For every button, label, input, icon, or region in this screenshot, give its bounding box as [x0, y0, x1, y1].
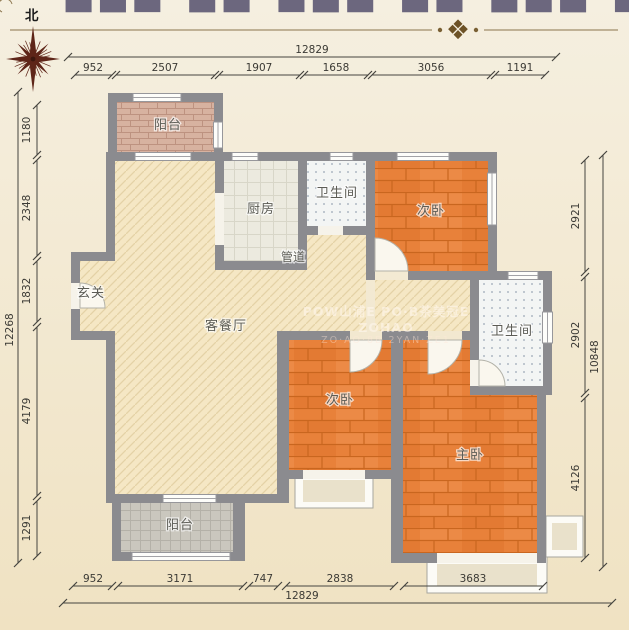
room-label-entry: 玄关: [77, 286, 105, 301]
bed-bottom-bay-opening: [303, 470, 365, 479]
bath-right-door: [470, 360, 479, 386]
dimension-top: 12829 952 2507 1907 1658 3056 1191: [64, 44, 560, 79]
bath-top-door: [318, 226, 343, 235]
hallway-floor: [307, 234, 366, 331]
dim-segment: 1832: [21, 278, 33, 305]
living-floor: [115, 161, 215, 494]
dim-segment: 747: [253, 573, 273, 585]
dim-segment: 4179: [21, 398, 33, 425]
living-floor: [215, 270, 277, 494]
room-label-duct: 管道: [281, 249, 305, 264]
floorplan-canvas: ▆▅▇ ▅▆ ▇▅▆ ▆▇ ▅▆▅ ▇▆ ▅▇▅ ▆▅: [0, 0, 629, 630]
dim-segment: 1907: [246, 62, 273, 74]
dim-segment: 2507: [152, 62, 179, 74]
dim-segment: 2902: [570, 322, 582, 349]
room-label-balcony-bottom: 阳台: [166, 518, 194, 533]
dim-segment: 2921: [570, 203, 582, 230]
dim-segment: 3171: [167, 573, 194, 585]
bay-inner: [437, 564, 537, 586]
room-label-living: 客餐厅: [205, 318, 247, 334]
dim-right-total: 10848: [589, 340, 601, 373]
room-label-bed-bottom: 次卧: [326, 392, 354, 408]
room-label-balcony-top: 阳台: [154, 118, 182, 133]
dim-segment: 3683: [460, 573, 487, 585]
corner-flourish-icon: [0, 0, 12, 12]
dim-segment: 1658: [323, 62, 350, 74]
ornament-icon: ❖: [446, 15, 470, 46]
bay-inner: [552, 523, 577, 550]
dim-top-total: 12829: [295, 44, 328, 56]
dim-segment: 952: [83, 573, 103, 585]
dim-segment: 2838: [327, 573, 354, 585]
header-ornament: ❖: [0, 0, 618, 46]
bay-inner: [303, 480, 365, 502]
dim-left-total: 12268: [4, 313, 16, 346]
dim-segment: 952: [83, 62, 103, 74]
dim-segment: 1191: [507, 62, 534, 74]
compass-icon: 北: [2, 8, 64, 92]
dim-segment: 1291: [21, 515, 33, 542]
room-label-master: 主卧: [456, 448, 484, 463]
master-bay-opening: [437, 553, 537, 563]
room-label-kitchen: 厨房: [247, 201, 275, 217]
hallway-floor: [375, 280, 470, 331]
room-label-bath-top: 卫生间: [316, 186, 358, 201]
living-floor: [277, 270, 307, 331]
dim-segment: 2348: [21, 195, 33, 222]
north-label: 北: [25, 8, 39, 24]
dim-segment: 1180: [21, 117, 33, 144]
kitchen-opening: [215, 193, 224, 245]
dimension-right: 2921 2902 4126 10848: [570, 151, 607, 571]
dim-bottom-total: 12829: [285, 590, 318, 602]
room-label-bath-right: 卫生间: [491, 324, 533, 339]
floorplan-svg: ❖ 北: [0, 0, 629, 630]
dimension-left: 1180 2348 1832 4179 1291 12268: [4, 88, 41, 567]
room-label-bed-top-right: 次卧: [417, 203, 445, 219]
dim-segment: 3056: [418, 62, 445, 74]
dim-segment: 4126: [570, 464, 582, 491]
